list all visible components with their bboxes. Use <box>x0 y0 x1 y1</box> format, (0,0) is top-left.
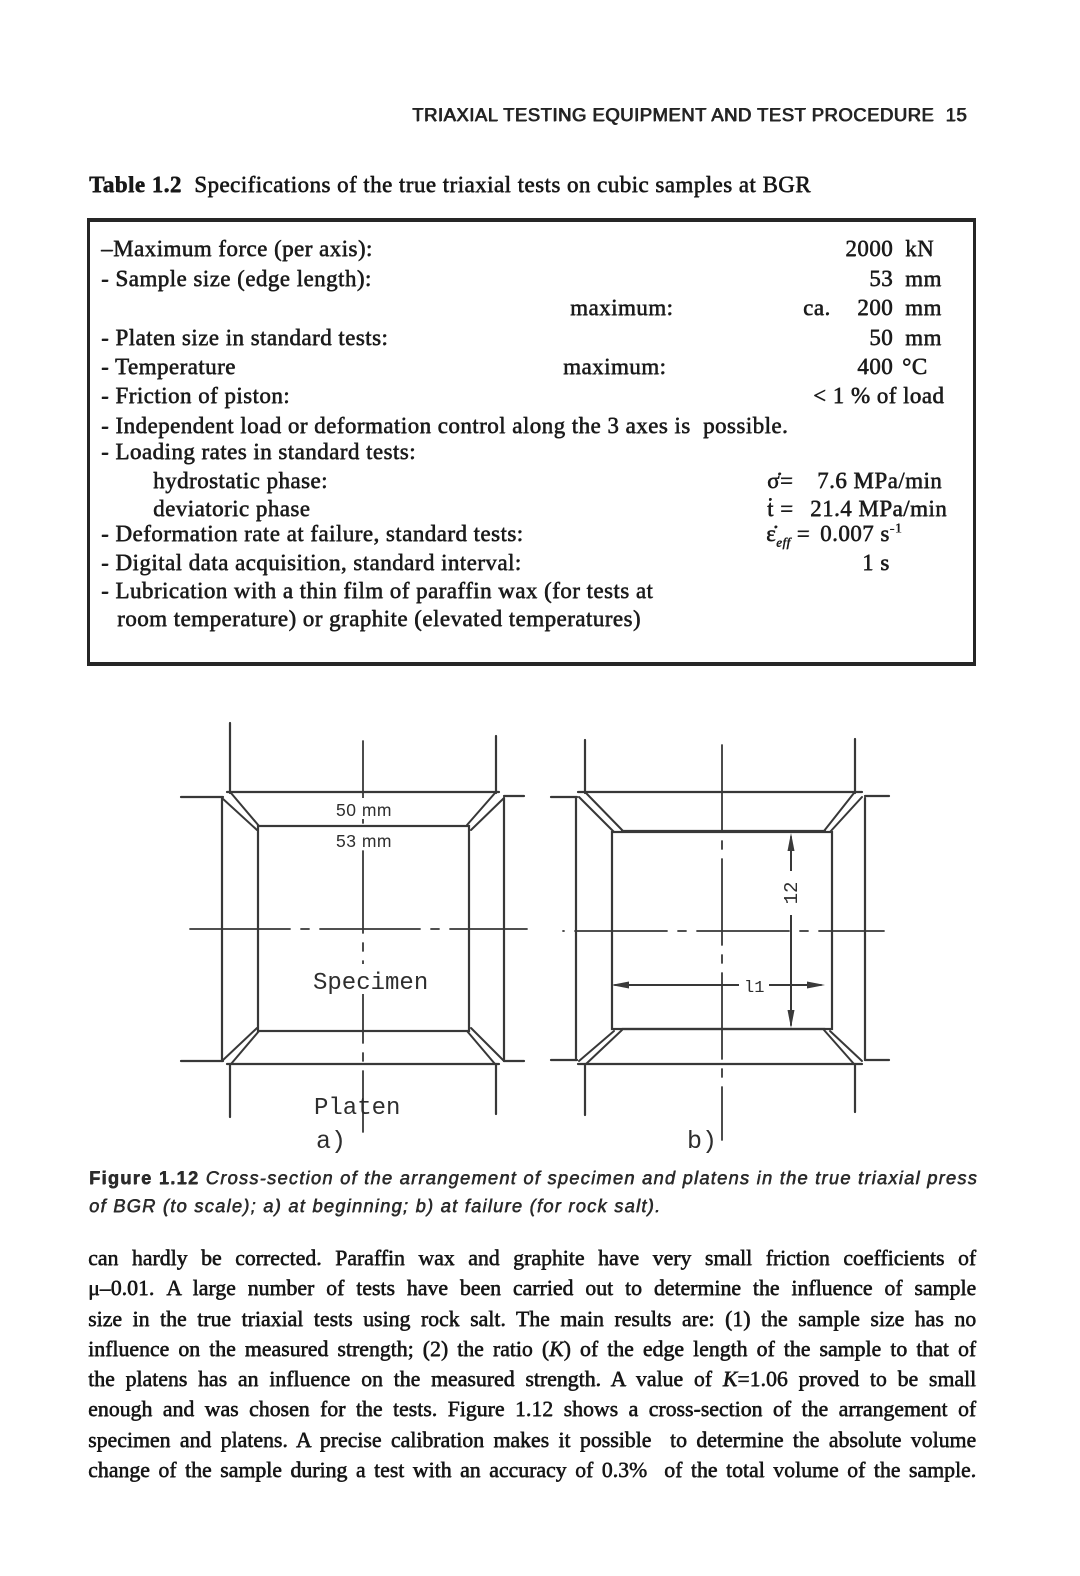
svg-text:b): b) <box>687 1127 717 1156</box>
svg-text:Platen: Platen <box>314 1095 400 1122</box>
svg-text:l1: l1 <box>744 979 764 998</box>
svg-text:a): a) <box>316 1127 346 1156</box>
svg-text:Specimen: Specimen <box>313 970 428 997</box>
svg-text:50 mm: 50 mm <box>336 800 392 820</box>
svg-text:53 mm: 53 mm <box>336 831 392 851</box>
svg-text:12: 12 <box>781 882 803 905</box>
